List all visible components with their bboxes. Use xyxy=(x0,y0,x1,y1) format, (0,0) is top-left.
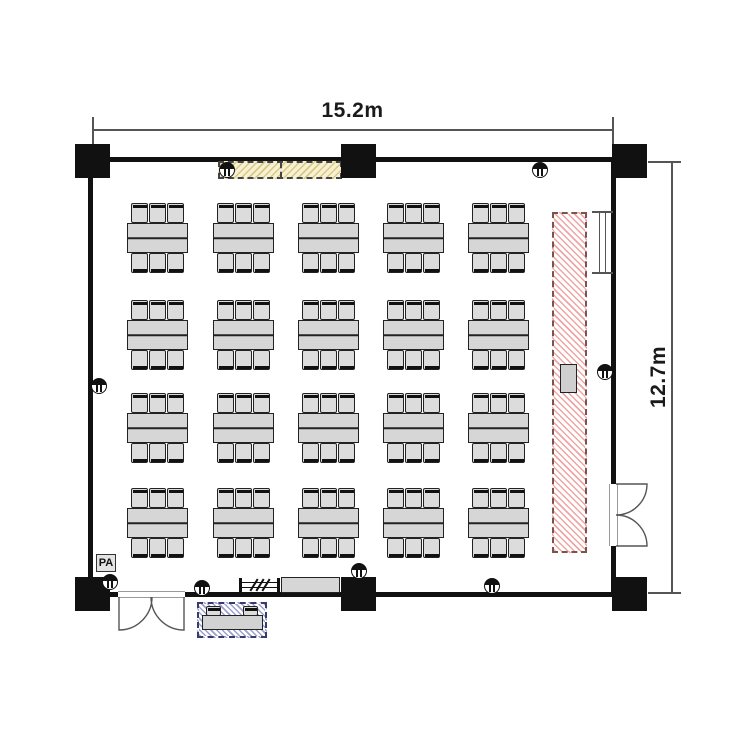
entrance-door-opening xyxy=(118,591,185,598)
chair xyxy=(302,443,319,463)
table xyxy=(383,413,444,443)
table xyxy=(383,320,444,350)
chair xyxy=(472,443,489,463)
column-top-left xyxy=(75,144,110,178)
chair xyxy=(131,393,148,413)
chair xyxy=(302,300,319,320)
chair xyxy=(253,203,270,223)
chair xyxy=(167,393,184,413)
table-group xyxy=(298,300,359,370)
chair xyxy=(217,350,234,370)
pa-label: PA xyxy=(99,557,113,569)
table xyxy=(383,508,444,538)
table xyxy=(468,223,529,253)
chair xyxy=(490,253,507,273)
table-group xyxy=(298,488,359,558)
chair xyxy=(167,538,184,558)
chair xyxy=(320,393,337,413)
table xyxy=(127,320,188,350)
chair xyxy=(149,393,166,413)
chair xyxy=(338,393,355,413)
chair xyxy=(149,300,166,320)
chair xyxy=(338,350,355,370)
chair xyxy=(302,203,319,223)
chair xyxy=(387,488,404,508)
chair xyxy=(149,253,166,273)
table xyxy=(127,508,188,538)
chair xyxy=(320,350,337,370)
table-group xyxy=(127,300,188,370)
table xyxy=(468,508,529,538)
chair xyxy=(490,443,507,463)
table-group xyxy=(383,300,444,370)
side-door-opening xyxy=(609,484,618,546)
chair xyxy=(405,253,422,273)
chair xyxy=(423,393,440,413)
chair xyxy=(131,300,148,320)
chair xyxy=(149,203,166,223)
chair xyxy=(490,300,507,320)
table-group xyxy=(213,393,274,463)
chair xyxy=(387,300,404,320)
chair xyxy=(217,203,234,223)
table xyxy=(127,413,188,443)
table xyxy=(468,320,529,350)
table-group xyxy=(298,393,359,463)
chair xyxy=(131,253,148,273)
table xyxy=(127,223,188,253)
table xyxy=(213,508,274,538)
chair xyxy=(217,300,234,320)
table xyxy=(383,223,444,253)
partition-end-right xyxy=(277,578,280,592)
chair xyxy=(235,443,252,463)
chair xyxy=(320,253,337,273)
column-top-right xyxy=(612,144,647,178)
chair xyxy=(405,203,422,223)
chair xyxy=(217,488,234,508)
chair xyxy=(387,393,404,413)
chair xyxy=(387,443,404,463)
chair xyxy=(167,443,184,463)
chair xyxy=(253,443,270,463)
chair xyxy=(490,538,507,558)
pa-equipment-box: PA xyxy=(96,554,116,572)
column-bottom-middle xyxy=(341,577,376,611)
chair xyxy=(235,393,252,413)
chair xyxy=(217,443,234,463)
chair xyxy=(320,443,337,463)
chair xyxy=(472,350,489,370)
table-group xyxy=(213,300,274,370)
floor-plan: 15.2m 12.7m PA xyxy=(0,0,750,750)
chair xyxy=(387,253,404,273)
table xyxy=(298,508,359,538)
chair xyxy=(131,350,148,370)
chair xyxy=(235,253,252,273)
chair xyxy=(508,203,525,223)
table xyxy=(213,413,274,443)
chair xyxy=(302,488,319,508)
chair xyxy=(405,443,422,463)
chair xyxy=(508,488,525,508)
chair xyxy=(131,488,148,508)
chair xyxy=(405,538,422,558)
chair xyxy=(320,538,337,558)
table-group xyxy=(213,203,274,273)
table-group xyxy=(127,488,188,558)
chair xyxy=(423,300,440,320)
chair xyxy=(508,443,525,463)
table-group xyxy=(298,203,359,273)
chair xyxy=(167,253,184,273)
chair xyxy=(149,443,166,463)
chair xyxy=(320,300,337,320)
chair xyxy=(149,488,166,508)
chair xyxy=(490,393,507,413)
chair xyxy=(253,350,270,370)
table-group xyxy=(383,393,444,463)
chair xyxy=(472,253,489,273)
chair xyxy=(508,300,525,320)
chair xyxy=(217,393,234,413)
chair xyxy=(149,350,166,370)
chair xyxy=(405,300,422,320)
table-group xyxy=(127,203,188,273)
chair xyxy=(423,443,440,463)
table xyxy=(298,320,359,350)
chair xyxy=(253,300,270,320)
chair xyxy=(490,488,507,508)
chair xyxy=(423,350,440,370)
chair xyxy=(320,203,337,223)
chair xyxy=(490,350,507,370)
chair xyxy=(302,253,319,273)
column-bottom-right xyxy=(612,577,647,611)
chair xyxy=(253,538,270,558)
chair xyxy=(423,253,440,273)
chair xyxy=(302,393,319,413)
chair xyxy=(167,488,184,508)
table-group xyxy=(468,300,529,370)
column-bottom-left xyxy=(75,577,110,611)
chair xyxy=(472,393,489,413)
table-group xyxy=(468,488,529,558)
chair xyxy=(423,488,440,508)
chair xyxy=(508,253,525,273)
chair xyxy=(131,538,148,558)
chair xyxy=(235,488,252,508)
chair xyxy=(508,350,525,370)
chair xyxy=(167,300,184,320)
chair xyxy=(320,488,337,508)
table-group xyxy=(468,203,529,273)
chair xyxy=(405,488,422,508)
chair xyxy=(338,538,355,558)
console-table xyxy=(281,577,340,593)
chair xyxy=(423,203,440,223)
chair xyxy=(338,443,355,463)
chair xyxy=(302,350,319,370)
chair xyxy=(472,300,489,320)
chair xyxy=(131,443,148,463)
table-group xyxy=(383,203,444,273)
table-group xyxy=(213,488,274,558)
table xyxy=(213,223,274,253)
chair xyxy=(508,393,525,413)
chair xyxy=(167,203,184,223)
chair xyxy=(253,253,270,273)
chair xyxy=(217,538,234,558)
chair xyxy=(302,538,319,558)
chair xyxy=(508,538,525,558)
chair xyxy=(387,203,404,223)
table xyxy=(298,413,359,443)
chair xyxy=(167,350,184,370)
column-top-middle xyxy=(341,144,376,178)
chair xyxy=(338,488,355,508)
chair xyxy=(253,488,270,508)
chair xyxy=(235,203,252,223)
tables-layer xyxy=(0,0,750,750)
chair xyxy=(472,203,489,223)
chair xyxy=(338,203,355,223)
chair xyxy=(235,350,252,370)
chair xyxy=(131,203,148,223)
chair xyxy=(235,538,252,558)
table-group xyxy=(127,393,188,463)
reception-table xyxy=(202,615,263,630)
chair xyxy=(253,393,270,413)
chair xyxy=(387,538,404,558)
chair xyxy=(423,538,440,558)
chair xyxy=(387,350,404,370)
chair xyxy=(149,538,166,558)
table-group xyxy=(383,488,444,558)
table xyxy=(298,223,359,253)
chair xyxy=(338,253,355,273)
table xyxy=(213,320,274,350)
chair xyxy=(490,203,507,223)
chair xyxy=(338,300,355,320)
chair xyxy=(217,253,234,273)
chair xyxy=(235,300,252,320)
table xyxy=(468,413,529,443)
chair xyxy=(405,393,422,413)
table-group xyxy=(468,393,529,463)
chair xyxy=(472,538,489,558)
chair xyxy=(472,488,489,508)
chair xyxy=(405,350,422,370)
